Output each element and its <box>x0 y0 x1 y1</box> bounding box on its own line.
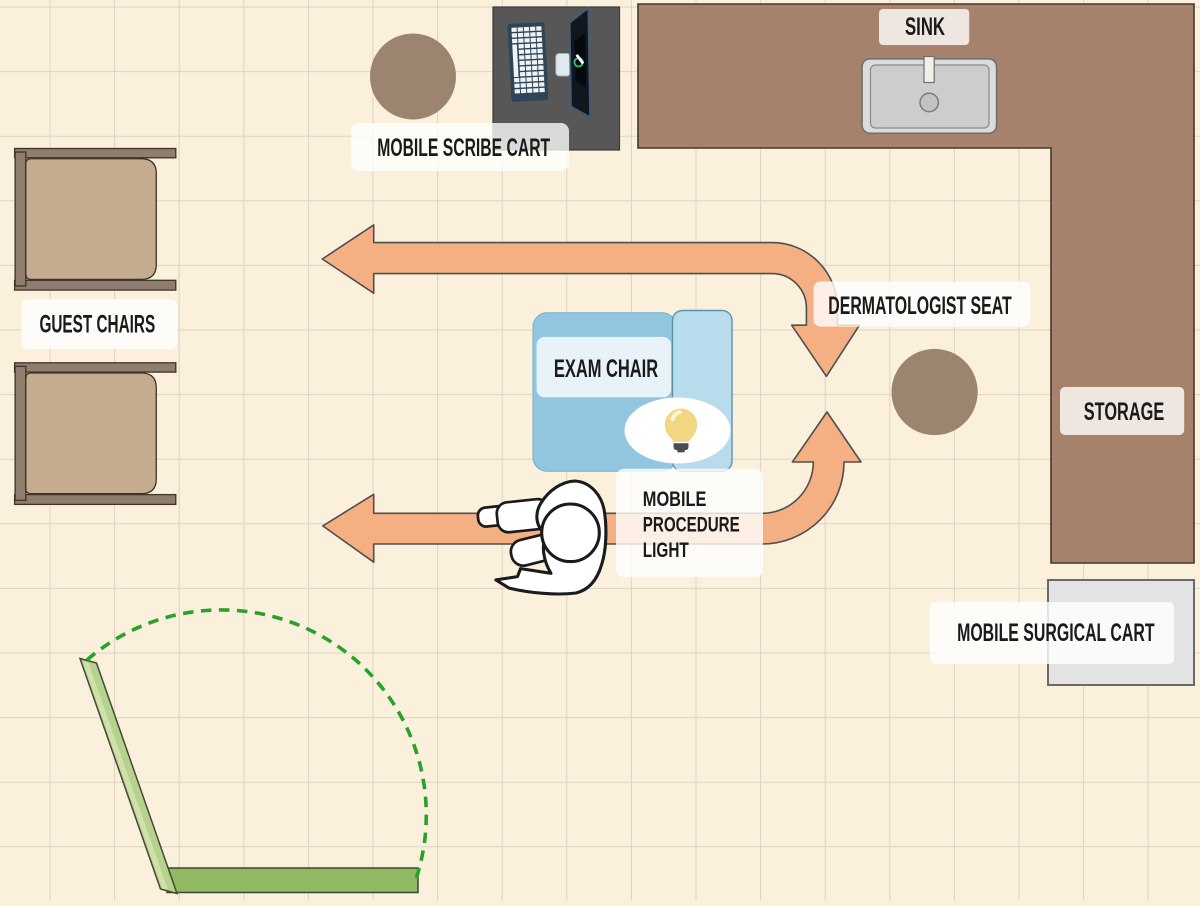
svg-text:PROCEDURE: PROCEDURE <box>643 512 740 536</box>
svg-text:SINK: SINK <box>905 13 945 41</box>
svg-text:MOBILE SCRIBE CART: MOBILE SCRIBE CART <box>377 134 550 162</box>
svg-text:GUEST CHAIRS: GUEST CHAIRS <box>39 311 155 339</box>
svg-text:MOBILE SURGICAL CART: MOBILE SURGICAL CART <box>957 620 1155 647</box>
svg-text:EXAM CHAIR: EXAM CHAIR <box>554 356 658 383</box>
svg-text:DERMATOLOGIST SEAT: DERMATOLOGIST SEAT <box>828 293 1012 320</box>
svg-text:STORAGE: STORAGE <box>1084 399 1164 426</box>
svg-text:LIGHT: LIGHT <box>643 538 690 562</box>
svg-text:MOBILE: MOBILE <box>643 487 707 510</box>
